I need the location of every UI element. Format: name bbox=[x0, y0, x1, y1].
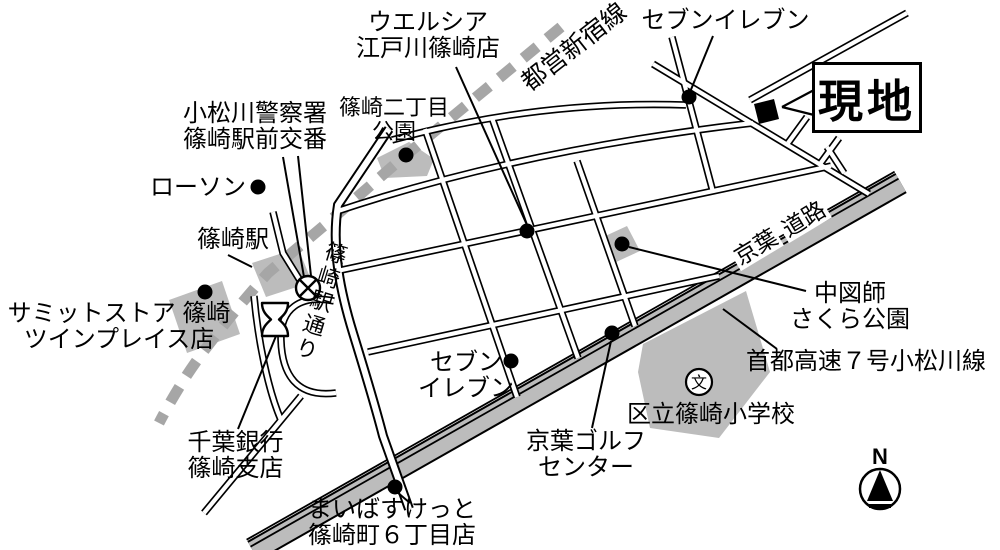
label-line: 篠崎二丁目 bbox=[330, 96, 458, 120]
genchi-marker bbox=[754, 99, 779, 124]
label-line: 千葉銀行 bbox=[183, 430, 288, 456]
genchi-callout: 現地 bbox=[812, 62, 922, 133]
label-line: 公園 bbox=[330, 120, 458, 144]
label-line: さくら公園 bbox=[785, 307, 915, 333]
label-nichome-park: 篠崎二丁目 公園 bbox=[330, 96, 458, 144]
label-line: 篠崎駅前交番 bbox=[180, 127, 330, 153]
maibasket-dot bbox=[388, 480, 403, 495]
street-segment bbox=[672, 37, 713, 192]
label-line: ツインプレイス店 bbox=[0, 327, 242, 353]
school-icon-glyph: 文 bbox=[691, 374, 707, 392]
label-maibasket: まいばすけっと 篠崎町６丁目店 bbox=[303, 497, 481, 549]
label-golf-center: 京葉ゴルフ センター bbox=[525, 429, 647, 481]
seven-north-leader bbox=[690, 36, 713, 92]
label-shuto-expressway: 首都高速７号小松川線 bbox=[746, 349, 986, 375]
label-line: 小松川警察署 bbox=[180, 101, 330, 127]
label-line: サミットストア 篠崎 bbox=[0, 301, 242, 327]
label-summit-store: サミットストア 篠崎 ツインプレイス店 bbox=[0, 301, 242, 353]
label-shinozaki-station: 篠崎駅 bbox=[197, 227, 269, 253]
label-seven-eleven-north: セブンイレブン bbox=[638, 8, 813, 34]
lawson-dot bbox=[251, 180, 266, 195]
label-line: セブン bbox=[406, 350, 526, 376]
label-welcia: ウエルシア 江戸川篠崎店 bbox=[348, 10, 508, 62]
label-line: 中図師 bbox=[785, 281, 915, 307]
compass: N bbox=[860, 444, 900, 509]
label-chiba-bank: 千葉銀行 篠崎支店 bbox=[183, 430, 288, 482]
label-school: 区立篠崎小学校 bbox=[627, 402, 795, 428]
label-nakazushi-park: 中図師 さくら公園 bbox=[785, 281, 915, 333]
street-segment bbox=[788, 117, 807, 143]
golf-dot bbox=[605, 326, 620, 341]
compass-needle-icon bbox=[867, 470, 893, 501]
school-icon: 文 bbox=[686, 369, 712, 395]
label-seven-eleven-south: セブン イレブン bbox=[406, 350, 526, 402]
map-root: 文 N ウエルシア 江戸川篠崎店 都営新宿線 セブンイレブン 現地 小松川警察署… bbox=[0, 0, 1000, 550]
compass-north-label: N bbox=[872, 444, 888, 469]
label-lawson: ローソン bbox=[150, 175, 246, 201]
station-leader bbox=[228, 255, 252, 267]
label-line: ウエルシア bbox=[348, 10, 508, 36]
label-line: 江戸川篠崎店 bbox=[348, 36, 508, 62]
genchi-callout-pointer bbox=[782, 90, 814, 115]
label-line: 篠崎町６丁目店 bbox=[303, 523, 481, 549]
label-police-box: 小松川警察署 篠崎駅前交番 bbox=[180, 101, 330, 153]
welcia-dot bbox=[520, 224, 535, 239]
label-line: 篠崎支店 bbox=[183, 456, 288, 482]
label-line: センター bbox=[525, 455, 647, 481]
label-line: 京葉ゴルフ bbox=[525, 429, 647, 455]
summit-dot bbox=[198, 285, 213, 300]
nichome-park-dot bbox=[399, 148, 414, 163]
label-line: まいばすけっと bbox=[303, 497, 481, 523]
seven-north-dot bbox=[682, 90, 697, 105]
label-line: イレブン bbox=[406, 376, 526, 402]
nakazushi-park-dot bbox=[615, 237, 630, 252]
